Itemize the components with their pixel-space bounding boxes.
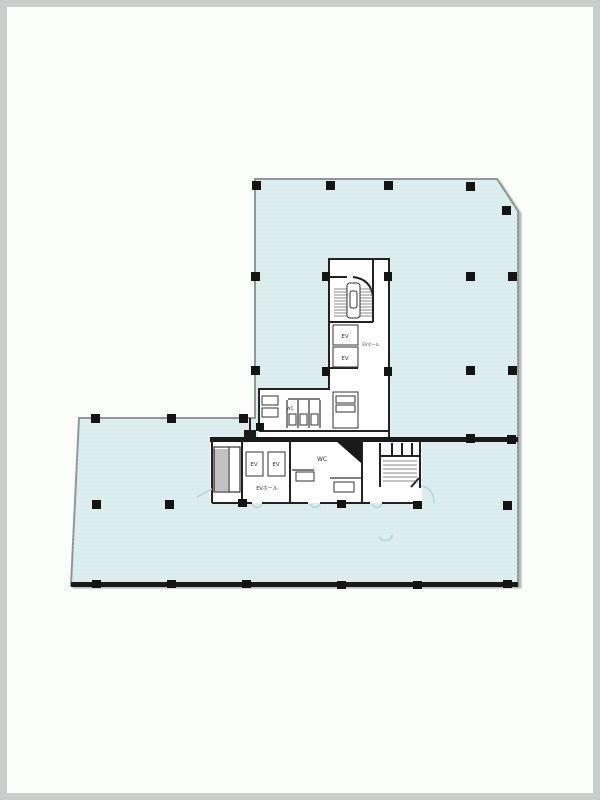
restroom-label: WC	[286, 406, 294, 412]
column	[384, 367, 392, 376]
stair-newel-inner	[350, 291, 357, 308]
elevator-label: EV	[341, 356, 348, 362]
bottom-edge-wall	[71, 582, 518, 587]
column	[92, 580, 101, 588]
column	[337, 500, 346, 508]
column	[466, 366, 475, 375]
column	[322, 272, 330, 281]
elevator-hall-label: EVホール	[362, 342, 379, 347]
column	[502, 206, 511, 215]
column	[384, 272, 392, 281]
column	[252, 181, 261, 190]
elevator-label: EV	[341, 334, 348, 340]
column	[167, 580, 176, 588]
sink-counter	[262, 396, 278, 405]
toilet-fixture	[311, 414, 318, 425]
column	[242, 580, 251, 588]
elevator-label: EV	[272, 462, 279, 468]
sink-counter	[262, 408, 278, 417]
column	[508, 366, 517, 375]
column	[503, 580, 512, 588]
column	[92, 500, 101, 509]
floor-plan-page: EV EV EVホール WC EV EV	[0, 0, 600, 800]
column	[238, 499, 247, 507]
column	[466, 182, 475, 191]
column	[322, 367, 330, 376]
toilet-fixture	[289, 414, 296, 425]
column	[326, 181, 335, 190]
service-shelf	[336, 396, 355, 403]
floor-plan-drawing: EV EV EVホール WC EV EV	[0, 0, 600, 800]
column	[466, 434, 475, 443]
wc-counter	[296, 472, 314, 481]
column	[251, 272, 260, 281]
column	[91, 414, 100, 423]
column	[239, 414, 248, 423]
column	[413, 501, 422, 509]
floor-texture	[71, 179, 518, 585]
column	[384, 181, 393, 190]
restroom-label: WC	[317, 456, 327, 463]
wc-fixture	[334, 482, 354, 492]
building-outline	[71, 179, 518, 585]
column	[167, 414, 176, 423]
column	[165, 500, 174, 509]
column	[466, 272, 475, 281]
column	[413, 581, 422, 589]
elevator-label: EV	[250, 462, 257, 468]
column	[256, 423, 264, 431]
wall-junction-block	[244, 430, 256, 438]
stair-treads	[215, 449, 227, 491]
toilet-fixture	[300, 414, 307, 425]
column	[337, 581, 346, 589]
column	[507, 435, 516, 444]
column	[508, 272, 517, 281]
elevator-hall-label: EVホール	[256, 486, 278, 492]
column	[251, 366, 260, 375]
column	[503, 501, 512, 510]
service-shelf	[336, 405, 355, 412]
